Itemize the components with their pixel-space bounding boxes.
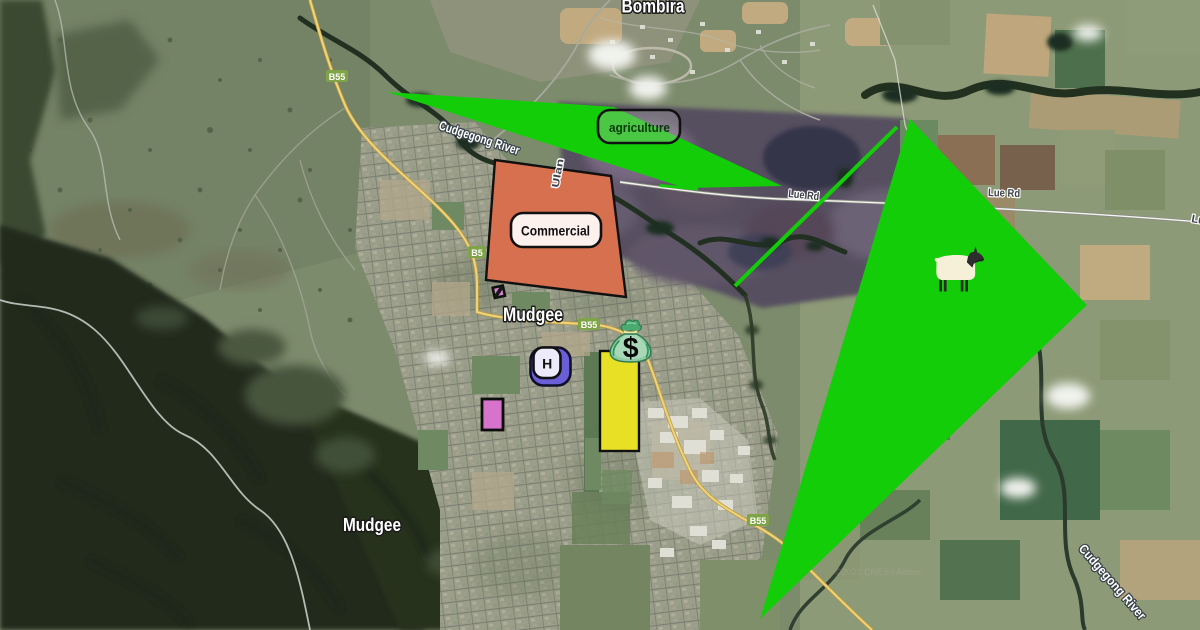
svg-text:B55: B55	[750, 516, 767, 526]
svg-text:©2022 CNES / Airbus: ©2022 CNES / Airbus	[835, 567, 922, 577]
svg-text:Lu: Lu	[1190, 213, 1200, 227]
svg-text:B55: B55	[581, 320, 598, 330]
svg-text:Bombira: Bombira	[622, 0, 685, 18]
svg-text:H: H	[542, 356, 552, 372]
svg-text:Mudgee: Mudgee	[503, 305, 563, 326]
svg-text:Commercial: Commercial	[521, 222, 590, 238]
svg-text:B5: B5	[471, 248, 483, 258]
svg-text:Mudgee: Mudgee	[343, 515, 401, 535]
svg-text:Lue Rd: Lue Rd	[988, 187, 1020, 200]
svg-text:B55: B55	[329, 72, 346, 82]
svg-text:$: $	[623, 333, 639, 365]
svg-text:agriculture: agriculture	[609, 120, 670, 135]
